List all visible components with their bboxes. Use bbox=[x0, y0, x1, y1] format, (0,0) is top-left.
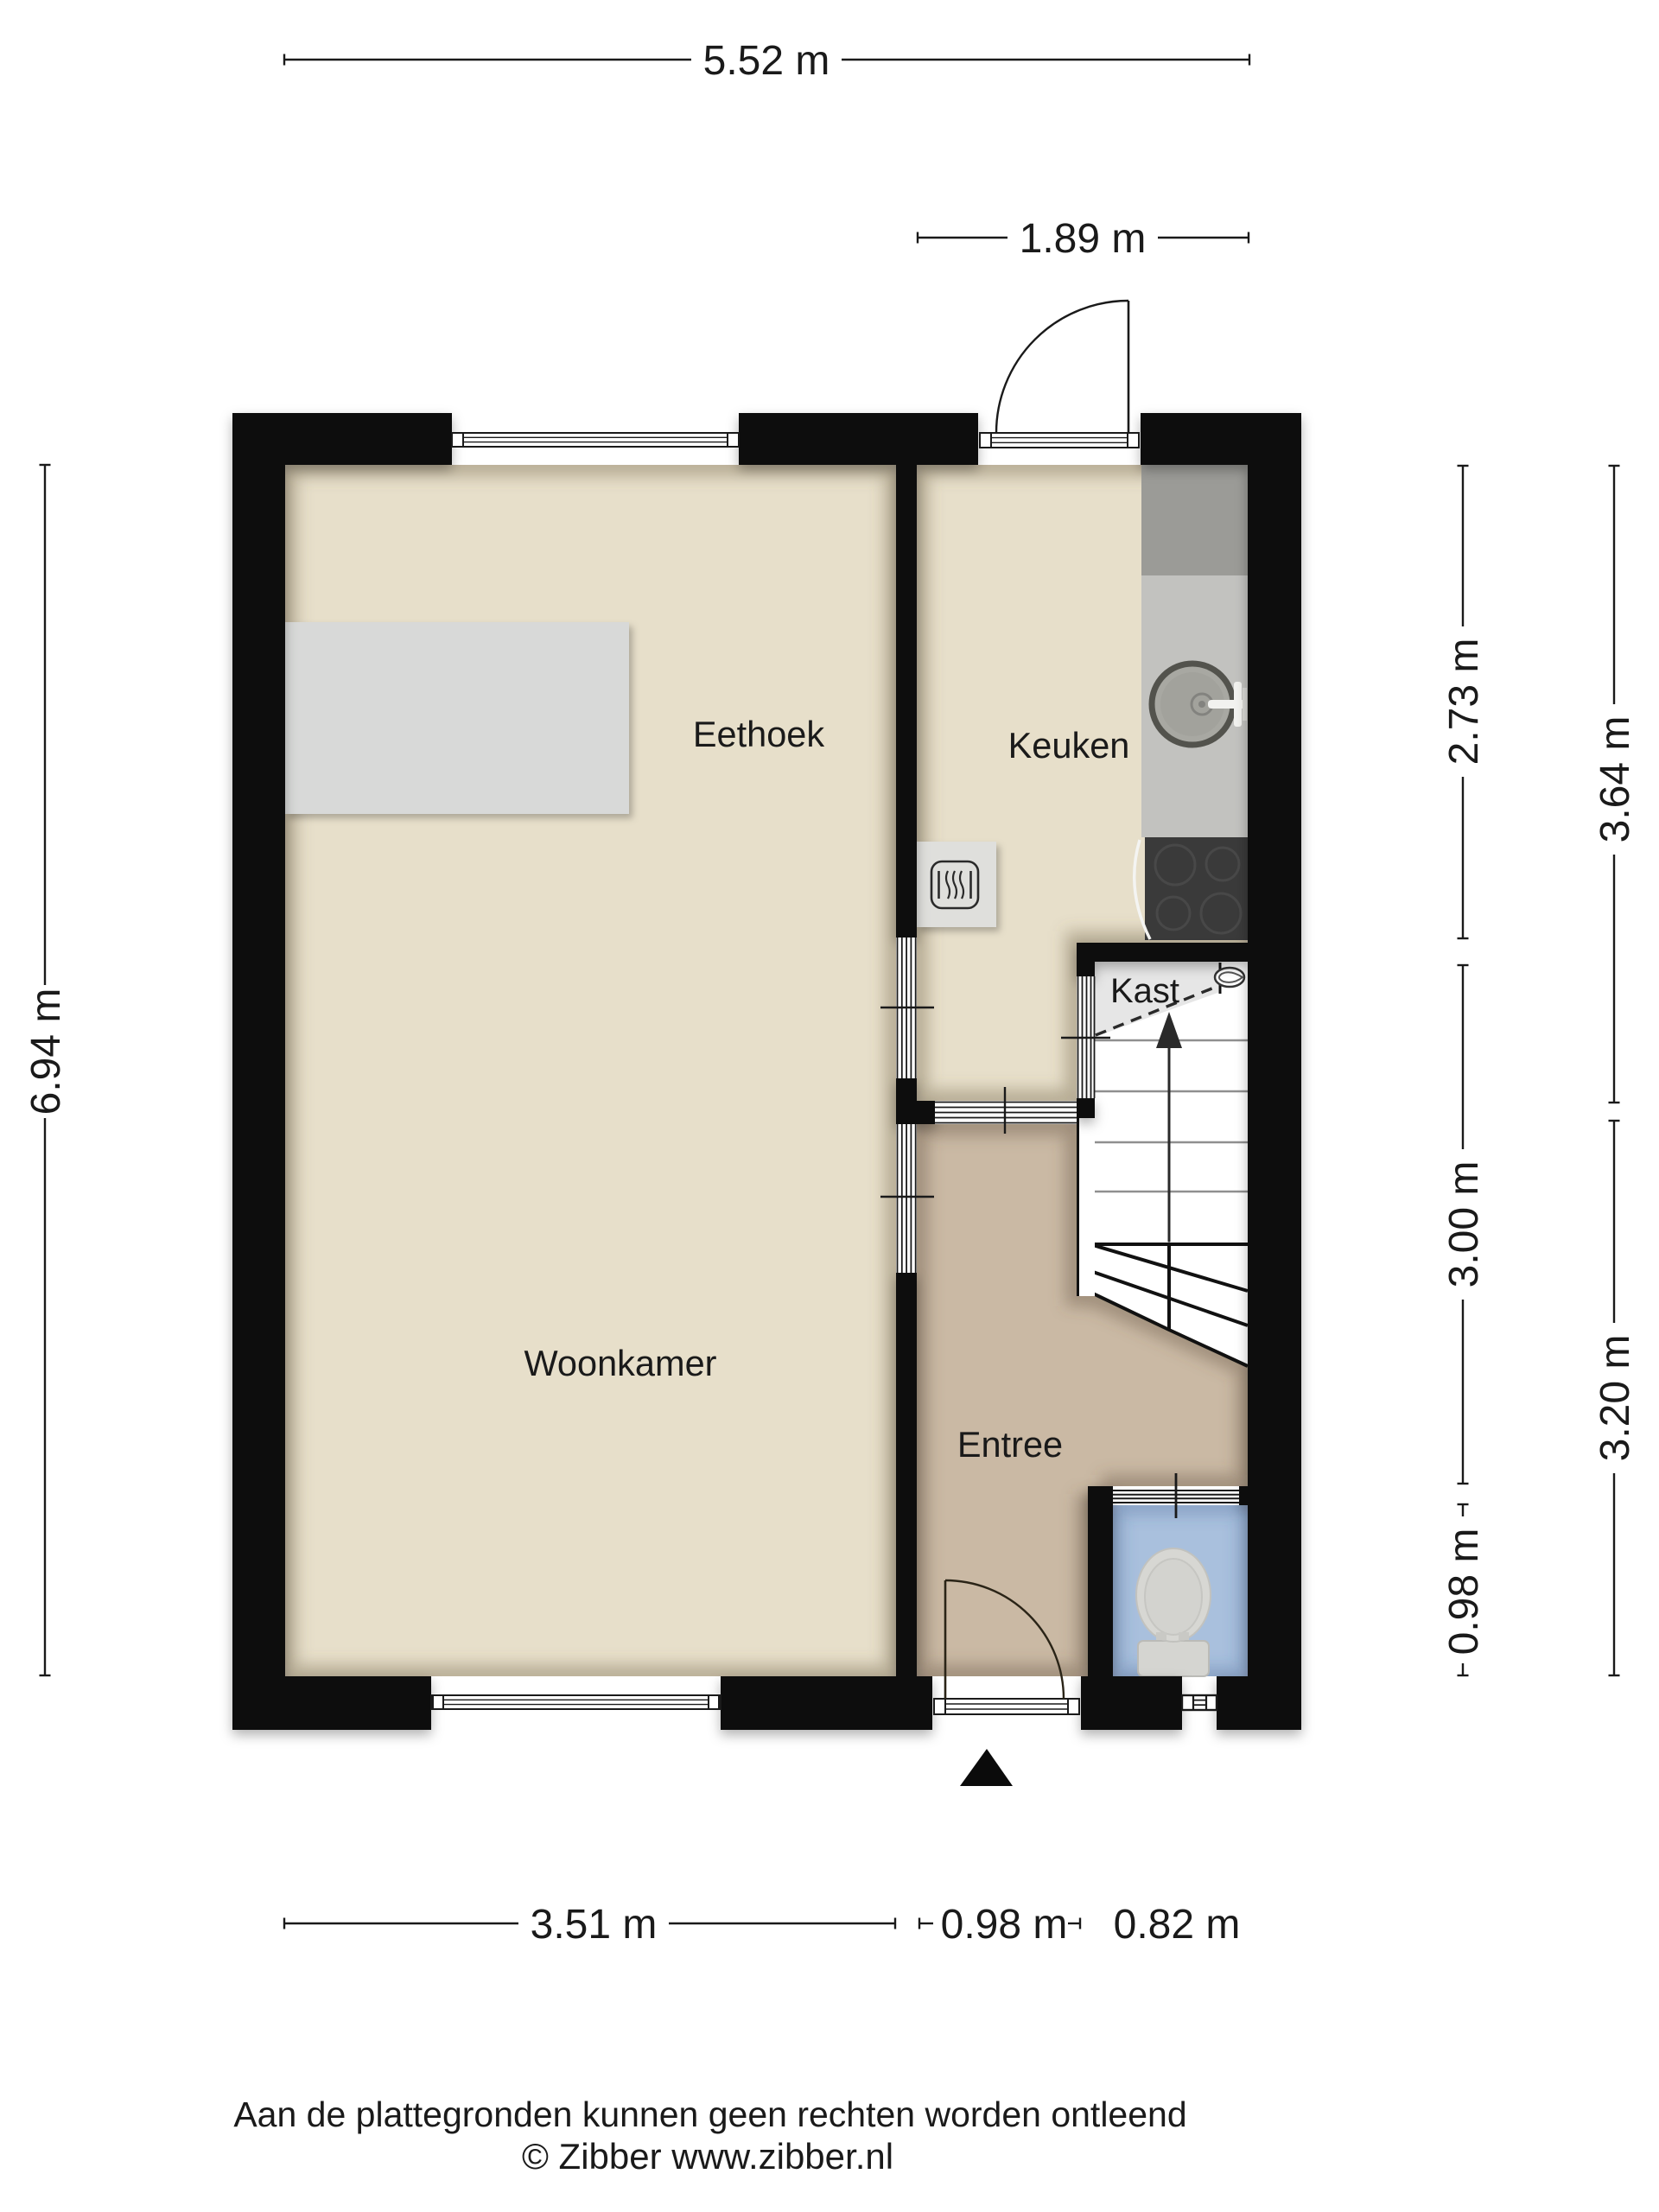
svg-text:0.98 m: 0.98 m bbox=[1441, 1529, 1487, 1656]
svg-text:2.73 m: 2.73 m bbox=[1441, 639, 1487, 766]
svg-text:Aan de plattegronden kunnen ge: Aan de plattegronden kunnen geen rechten… bbox=[233, 2094, 1186, 2134]
svg-text:3.20 m: 3.20 m bbox=[1592, 1335, 1638, 1462]
svg-text:Kast: Kast bbox=[1110, 972, 1179, 1010]
svg-text:3.00 m: 3.00 m bbox=[1441, 1161, 1487, 1288]
svg-text:1.89 m: 1.89 m bbox=[1020, 216, 1147, 262]
svg-text:3.64 m: 3.64 m bbox=[1592, 716, 1638, 843]
svg-text:5.52 m: 5.52 m bbox=[703, 38, 830, 84]
svg-text:0.82 m: 0.82 m bbox=[1114, 1902, 1241, 1948]
svg-text:Woonkamer: Woonkamer bbox=[524, 1343, 717, 1383]
svg-text:Eethoek: Eethoek bbox=[693, 714, 825, 754]
svg-text:© Zibber www.zibber.nl: © Zibber www.zibber.nl bbox=[522, 2136, 893, 2177]
svg-text:6.94 m: 6.94 m bbox=[23, 988, 69, 1116]
svg-text:3.51 m: 3.51 m bbox=[531, 1902, 658, 1948]
svg-text:0.98 m: 0.98 m bbox=[941, 1902, 1068, 1948]
svg-text:Entree: Entree bbox=[957, 1424, 1063, 1465]
svg-text:Keuken: Keuken bbox=[1008, 725, 1130, 766]
